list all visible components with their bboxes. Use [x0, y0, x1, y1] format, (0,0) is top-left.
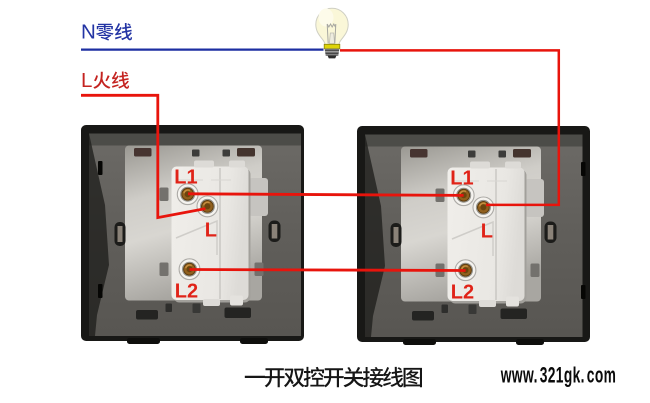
svg-text:L2: L2	[451, 281, 474, 303]
svg-text:L: L	[81, 69, 92, 92]
svg-text:N: N	[81, 21, 96, 44]
svg-text:www.321gk.com: www.321gk.com	[500, 362, 616, 387]
svg-text:L1: L1	[174, 167, 197, 189]
svg-text:L: L	[205, 219, 217, 241]
svg-text:L1: L1	[450, 168, 473, 190]
svg-text:L2: L2	[175, 280, 198, 302]
svg-text:L: L	[481, 220, 493, 242]
